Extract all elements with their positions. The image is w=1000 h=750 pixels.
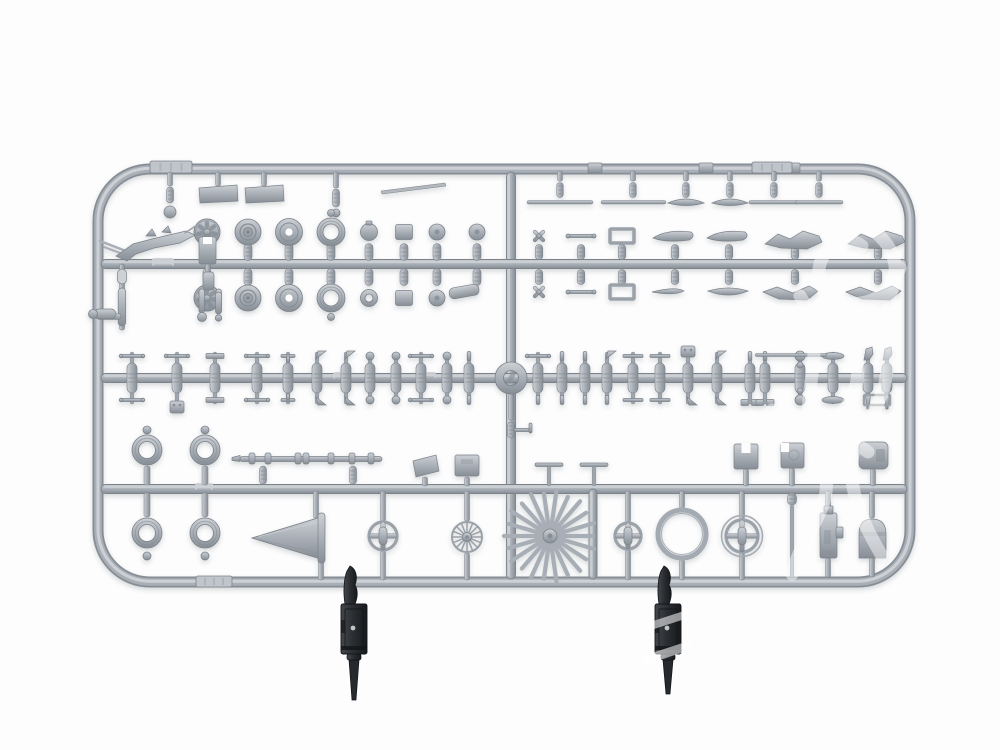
scene-root	[0, 0, 1000, 750]
product-photo: Product photograph of a light grey injec…	[0, 0, 1000, 750]
sprue-photo-svg: Product photograph of a light grey injec…	[0, 0, 1000, 750]
runner-upper	[101, 260, 907, 269]
runner-lower	[101, 485, 907, 494]
